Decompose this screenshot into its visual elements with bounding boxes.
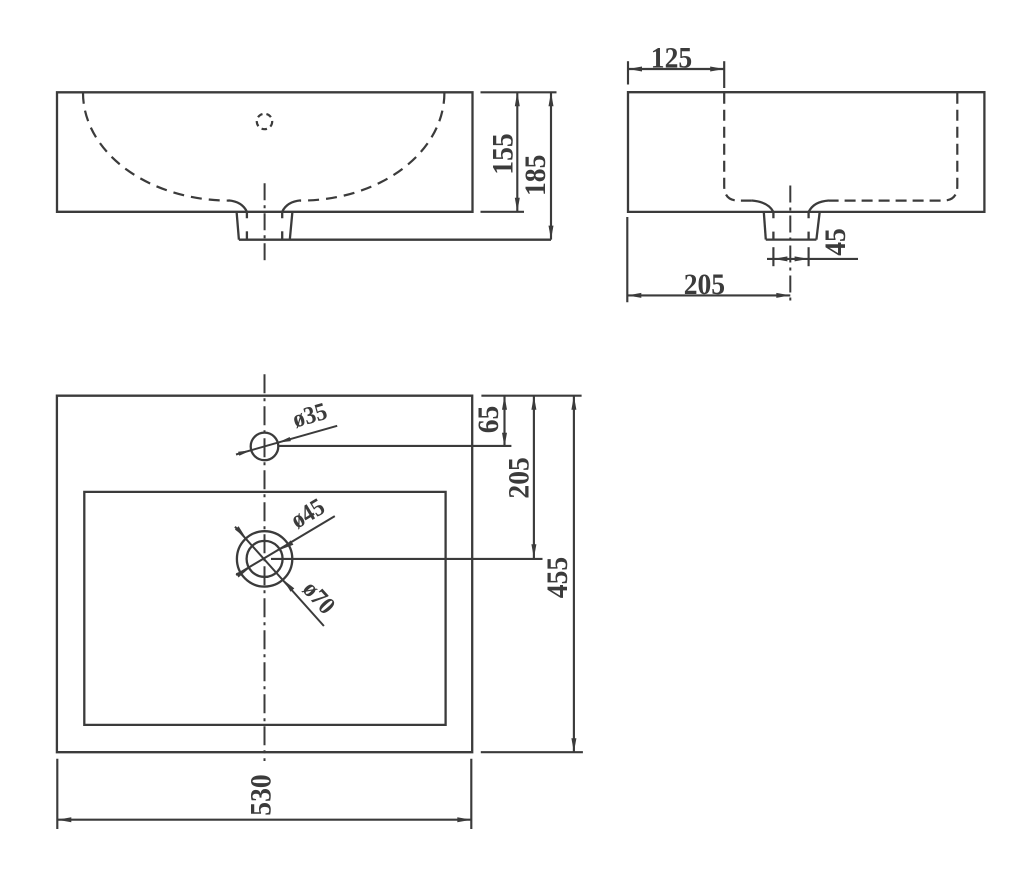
svg-text:45: 45 [819, 228, 852, 256]
svg-text:125: 125 [651, 41, 692, 74]
svg-text:455: 455 [541, 557, 574, 598]
svg-text:185: 185 [519, 155, 552, 196]
svg-text:205: 205 [502, 457, 535, 498]
svg-text:155: 155 [486, 133, 519, 174]
svg-text:530: 530 [244, 774, 277, 815]
svg-text:65: 65 [472, 406, 505, 434]
svg-text:205: 205 [684, 268, 725, 301]
